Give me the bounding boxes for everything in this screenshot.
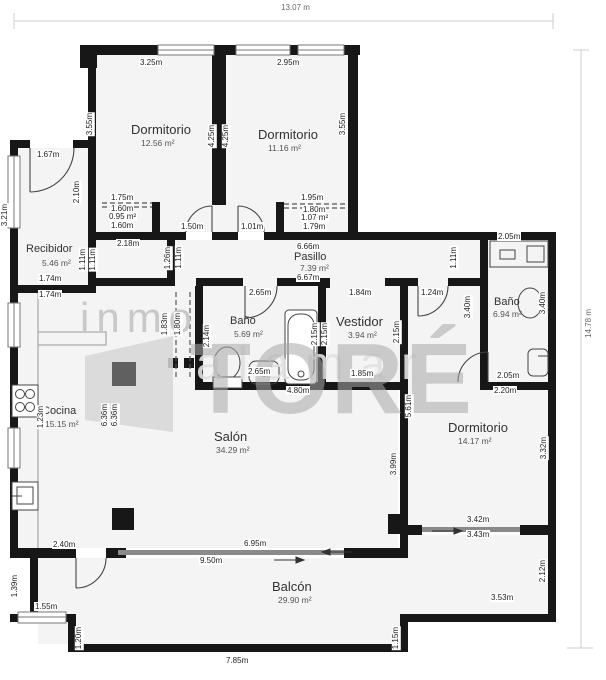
room-name-dorm1: Dormitorio: [131, 122, 191, 137]
dim-pasillo-stub-d: 1.11m: [175, 246, 184, 270]
dim-closet2-bottom: 1.79m: [302, 222, 326, 231]
dim-bano1-bottom: 2.65m: [247, 367, 271, 376]
room-name-balcon: Balcón: [272, 579, 312, 594]
dim-dorm1-top: 3.25m: [139, 58, 163, 67]
dim-recibidor-bottom-b: 1.74m: [38, 290, 62, 299]
dim-bano2-door: 1.24m: [420, 288, 444, 297]
dim-balcon-top: 9.50m: [199, 556, 223, 565]
dim-bano2-bottom: 2.05m: [496, 371, 520, 380]
dim-salon-top: 4.80m: [286, 386, 310, 395]
room-name-dorm3: Dormitorio: [448, 420, 508, 435]
dim-dorm2-right: 3.55m: [339, 112, 348, 136]
dim-bano2-right: 3.40m: [539, 291, 548, 315]
dim-pasillo-stub-c: 1.26m: [164, 246, 173, 270]
dim-vestidor-right: 2.15m: [393, 320, 402, 344]
room-area-dorm1: 12.56 m²: [141, 138, 175, 148]
room-area-cocina: 15.15 m²: [45, 419, 79, 429]
dim-balcon-bottom: 7.85m: [225, 656, 249, 665]
dim-dorm3-door-b: 3.43m: [466, 530, 490, 539]
room-area-balcon: 29.90 m²: [278, 595, 312, 605]
dim-cocina-nook-b: 1.80m: [174, 312, 183, 336]
dim-balcon-left: 1.39m: [11, 574, 20, 598]
dim-bano1-right-a: 2.15m: [311, 322, 320, 346]
dim-cocina-left: 1.23m: [37, 405, 46, 429]
dim-dorm3-right: 3.32m: [540, 436, 549, 460]
dim-dorm1-door: 1.50m: [180, 222, 204, 231]
room-area-salon: 34.29 m²: [216, 445, 250, 455]
dim-bano1-top: 2.65m: [248, 288, 272, 297]
dim-recibidor-left: 3.21m: [1, 203, 10, 227]
dim-cocina-mid-a: 6.36m: [101, 403, 110, 427]
dim-pasillo-top: 6.66m: [296, 242, 320, 251]
room-name-recibidor: Recibidor: [26, 243, 72, 255]
dim-dorm2-top: 2.95m: [276, 58, 300, 67]
room-name-pasillo: Pasillo: [294, 251, 326, 263]
dim-bano1-left: 2.14m: [203, 324, 212, 348]
dim-recibidor-right: 2.10m: [73, 180, 82, 204]
dim-cocina-mid-b: 6.36m: [111, 403, 120, 427]
room-area-dorm3: 14.17 m²: [458, 436, 492, 446]
dim-dorm1-right-a: 4.25m: [208, 124, 217, 148]
dim-balcon-step-w: 1.55m: [34, 602, 58, 611]
overall-width-label: 13.07 m: [281, 3, 310, 12]
overall-height-label: 14.78 m: [585, 308, 594, 339]
room-area-recibidor: 5.46 m²: [42, 258, 71, 268]
room-area-dorm2: 11.16 m²: [268, 143, 301, 153]
dim-recibidor-bottom-a: 1.74m: [38, 274, 62, 283]
room-name-salon: Salón: [214, 429, 247, 444]
dim-balcon-right: 2.12m: [539, 559, 548, 583]
dim-dorm3-door-a: 3.42m: [466, 515, 490, 524]
dim-pasillo-stub-a: 1.11m: [79, 248, 88, 272]
dim-closet2-top: 1.95m: [300, 193, 324, 202]
dim-salon-right: 3.99m: [390, 452, 399, 476]
dim-balcon-step-r: 1.15m: [392, 626, 401, 650]
room-area-pasillo: 7.39 m²: [300, 263, 329, 273]
dim-bano2-nook-top: 2.05m: [497, 232, 521, 241]
dim-vestidor-top: 1.84m: [348, 288, 372, 297]
room-area-bano1: 5.69 m²: [234, 329, 263, 339]
dim-pasillo-stub-b: 1.11m: [89, 248, 98, 272]
floorplan-page: alamar TORÉ inmo 13.07 m 14.78 m Dormito…: [0, 0, 606, 680]
dim-bano1-right-b: 2.15m: [321, 322, 330, 346]
room-name-bano2: Baño: [494, 296, 520, 308]
dim-bano2-stub: 1.11m: [450, 246, 459, 270]
room-name-dorm2: Dormitorio: [258, 127, 318, 142]
dim-dorm1-bottom: 2.18m: [116, 239, 140, 248]
dim-pasillo-bottom: 6.67m: [296, 273, 320, 282]
dim-balcon-right-bottom: 3.53m: [490, 593, 514, 602]
dim-dorm2-door: 1.01m: [240, 222, 264, 231]
floorplan-drawing: [0, 0, 606, 680]
room-area-bano2: 6.94 m²: [493, 309, 522, 319]
dim-cocina-bottom: 2.40m: [52, 540, 76, 549]
dim-dorm1-left: 3.55m: [86, 112, 95, 136]
room-name-cocina: Cocina: [42, 405, 76, 417]
dim-dorm1-right-b: 4.25m: [222, 124, 231, 148]
dim-salon-bottom: 6.95m: [243, 539, 267, 548]
room-area-vestidor: 3.94 m²: [348, 330, 377, 340]
dim-closet1-bottom: 1.60m: [110, 221, 134, 230]
dim-vestidor-bottom: 1.85m: [350, 369, 374, 378]
area-closet2: 1.07 m²: [300, 213, 329, 222]
dim-closet1-top: 1.75m: [110, 193, 134, 202]
stove-icon: [12, 385, 38, 417]
dim-balcon-step-h: 1.20m: [75, 626, 84, 650]
dim-bano2-left: 3.40m: [464, 295, 473, 319]
dim-dorm3-top: 2.20m: [493, 386, 517, 395]
dim-cocina-nook-a: 1.83m: [161, 312, 170, 336]
room-name-vestidor: Vestidor: [336, 314, 383, 329]
kitchen-sink-icon: [12, 482, 38, 510]
dim-dorm3-left: 5.61m: [405, 394, 414, 418]
dim-entry-door: 1.67m: [36, 150, 60, 159]
room-name-bano1: Baño: [230, 315, 256, 327]
area-closet1: 0.95 m²: [108, 212, 137, 221]
